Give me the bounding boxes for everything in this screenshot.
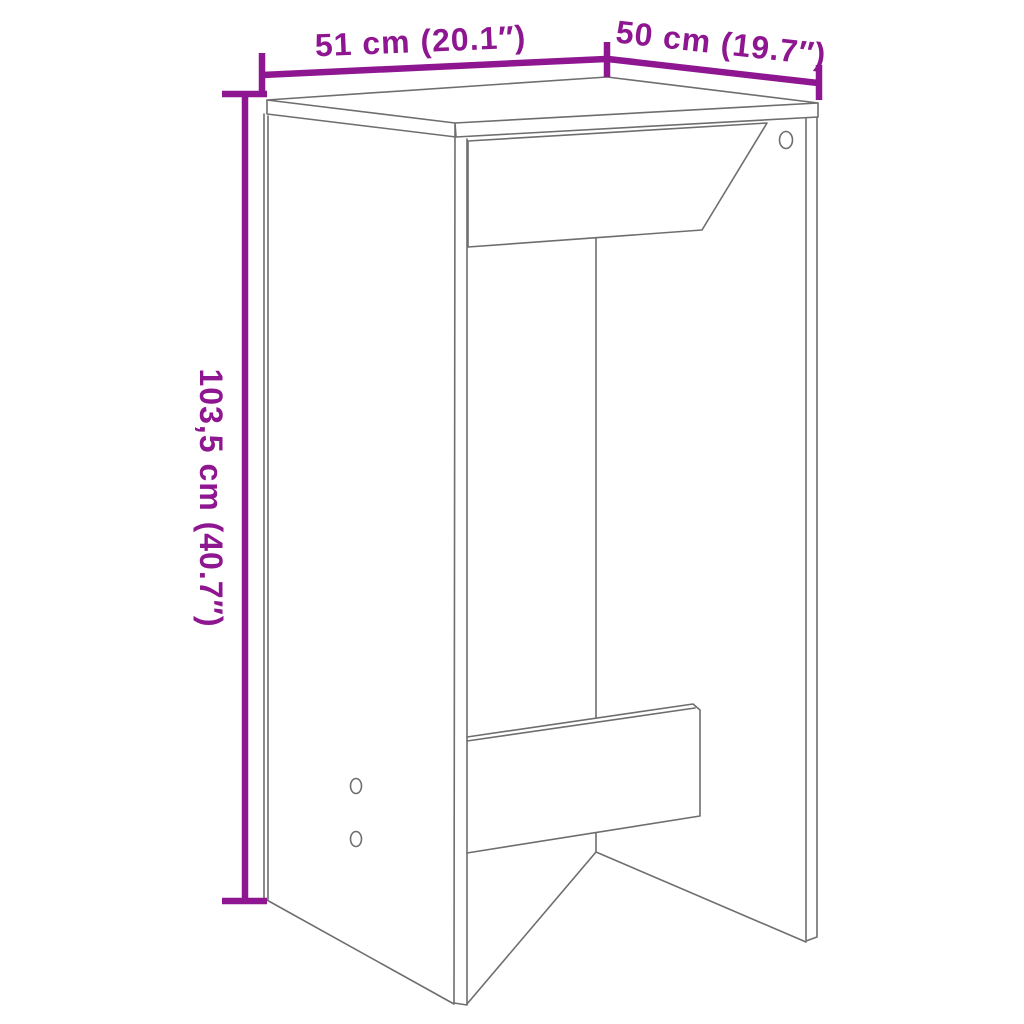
height-dimension-label: 103,5 cm (40.7″) — [193, 368, 229, 627]
width-dimension: 51 cm (20.1″) — [262, 19, 607, 93]
drill-hole-icon — [780, 132, 793, 149]
tabletop-top-face — [267, 77, 818, 123]
width-dimension-label: 51 cm (20.1″) — [314, 19, 527, 64]
product-dimension-image: 51 cm (20.1″) 50 cm (19.7″) 103,5 cm (40… — [0, 0, 1024, 1024]
height-dimension: 103,5 cm (40.7″) — [193, 94, 267, 901]
front-corner-panel-edges — [454, 125, 467, 1005]
bar-table-drawing — [264, 77, 818, 1005]
footrest-panel — [467, 704, 700, 853]
left-side-panel — [264, 114, 454, 1004]
drill-hole-icon — [351, 832, 362, 847]
drill-hole-icon — [351, 779, 362, 794]
depth-dimension: 50 cm (19.7″) — [608, 14, 828, 100]
center-spine-panel — [467, 238, 806, 1004]
apron-panel — [468, 123, 767, 247]
right-side-panel — [806, 117, 817, 941]
dimension-diagram-svg: 51 cm (20.1″) 50 cm (19.7″) 103,5 cm (40… — [0, 0, 1024, 1024]
